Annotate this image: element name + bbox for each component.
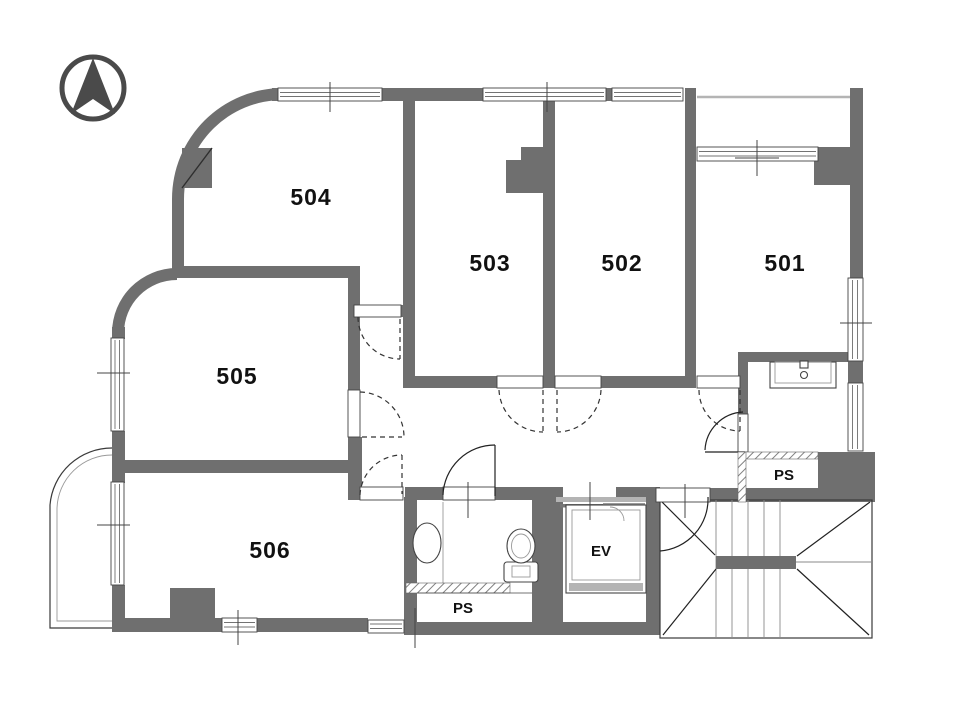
hatch-strip-right: [745, 452, 818, 459]
room-label-504: 504: [290, 184, 331, 210]
pipe-space-label-right: PS: [774, 467, 794, 484]
sink-icon: [770, 361, 836, 388]
elevator-shaft: [556, 487, 646, 593]
elevator-label: EV: [591, 543, 611, 560]
room-label-505: 505: [216, 363, 257, 389]
pillar-503: [506, 147, 553, 193]
elevator-door: [556, 497, 646, 502]
floor-plan-svg: 504 503 502 501 505 506 EV PS PS: [0, 0, 960, 720]
hatch-strip-wc: [406, 583, 510, 593]
room-label-501: 501: [764, 250, 805, 276]
room-label-503: 503: [469, 250, 510, 276]
floor-plan: 504 503 502 501 505 506 EV PS PS: [0, 0, 960, 720]
room-label-506: 506: [249, 537, 290, 563]
north-arrow-icon: [62, 57, 124, 119]
staircase: [660, 500, 872, 638]
walls: [112, 88, 875, 635]
hatch-strip-right-vert: [738, 452, 746, 502]
toilet-icon: [504, 529, 538, 582]
pillar-501: [814, 147, 852, 185]
room-label-502: 502: [601, 250, 642, 276]
pillar-506: [170, 588, 215, 620]
basin-icon: [413, 523, 441, 563]
pipe-space-label-bottom: PS: [453, 600, 473, 617]
balcony-bottom-left: [50, 448, 112, 628]
